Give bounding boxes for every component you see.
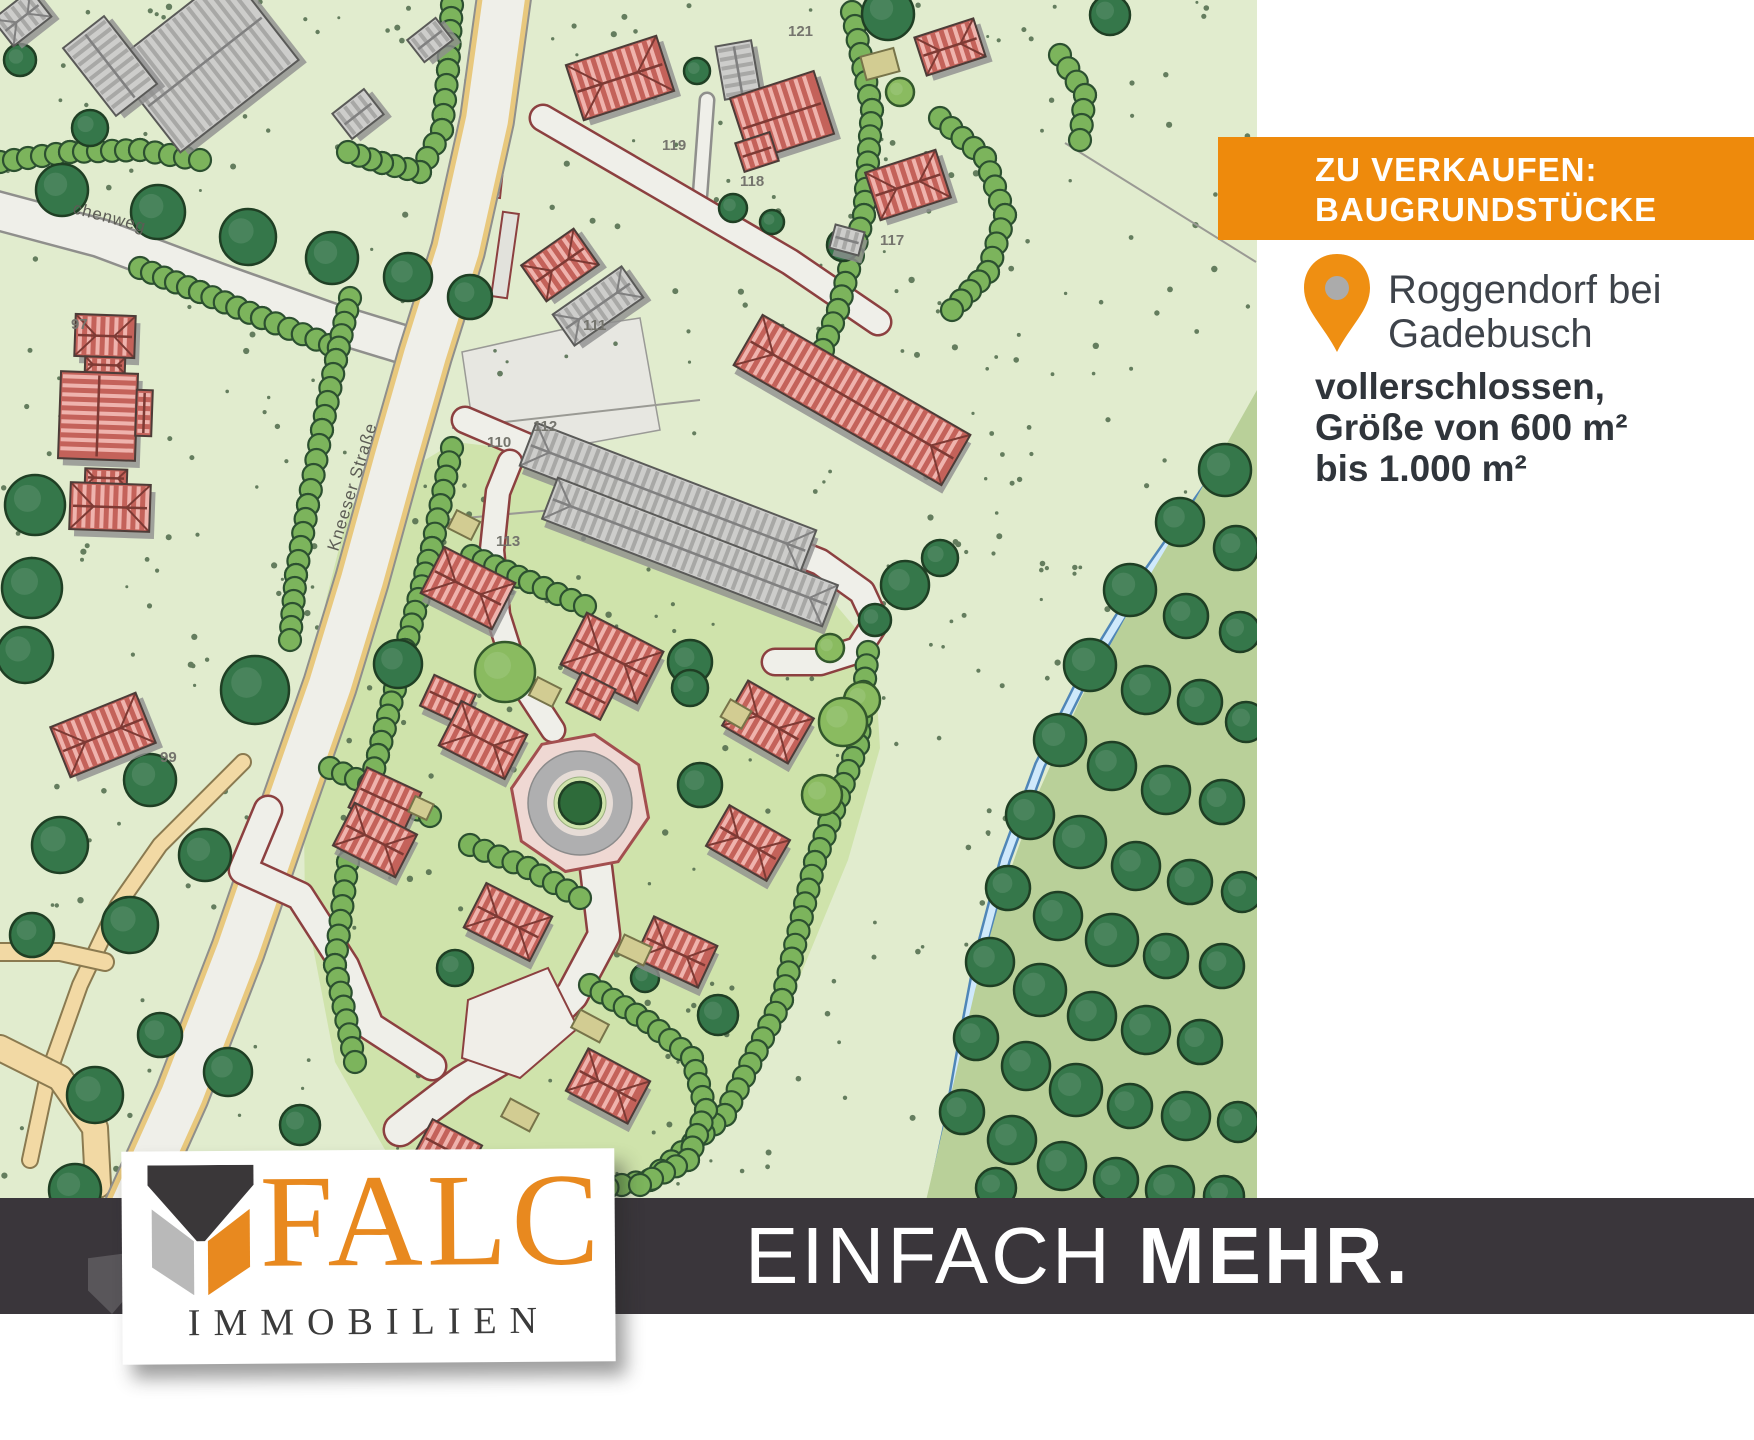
tagline: EINFACH MEHR. bbox=[745, 1198, 1411, 1314]
banner-line1: ZU VERKAUFEN: bbox=[1315, 150, 1754, 190]
svg-text:97: 97 bbox=[71, 316, 88, 333]
falc-logo-word: FALC bbox=[259, 1160, 603, 1280]
location-line1: Roggendorf bei bbox=[1388, 268, 1728, 312]
details-line3: bis 1.000 m² bbox=[1315, 448, 1628, 489]
svg-text:113: 113 bbox=[496, 533, 520, 550]
location-line2: Gadebusch bbox=[1388, 312, 1728, 356]
tagline-regular: EINFACH bbox=[745, 1210, 1138, 1302]
svg-text:118: 118 bbox=[740, 173, 764, 190]
svg-text:117: 117 bbox=[880, 232, 904, 249]
map-pin-icon bbox=[1302, 252, 1372, 356]
details-line1: vollerschlossen, bbox=[1315, 366, 1628, 407]
falc-logo-icon bbox=[147, 1165, 256, 1296]
svg-text:119: 119 bbox=[662, 137, 686, 154]
svg-text:112: 112 bbox=[533, 418, 557, 435]
tagline-bold: MEHR. bbox=[1138, 1210, 1411, 1302]
svg-text:121: 121 bbox=[788, 23, 813, 40]
falc-logo-subtitle: IMMOBILIEN bbox=[146, 1298, 591, 1345]
svg-text:99: 99 bbox=[160, 749, 177, 766]
svg-text:110: 110 bbox=[487, 434, 511, 451]
for-sale-banner: ZU VERKAUFEN: BAUGRUNDSTÜCKE bbox=[1218, 137, 1754, 240]
svg-text:111: 111 bbox=[583, 317, 606, 334]
banner-line2: BAUGRUNDSTÜCKE bbox=[1315, 190, 1754, 230]
details-line2: Größe von 600 m² bbox=[1315, 407, 1628, 448]
site-plan-map: 9799110111112113117118119121Kneeser Stra… bbox=[0, 0, 1257, 1200]
falc-logo-box: FALC IMMOBILIEN bbox=[121, 1148, 615, 1364]
flyer-canvas: 9799110111112113117118119121Kneeser Stra… bbox=[0, 0, 1754, 1440]
plot-details: vollerschlossen, Größe von 600 m² bis 1.… bbox=[1315, 366, 1628, 489]
